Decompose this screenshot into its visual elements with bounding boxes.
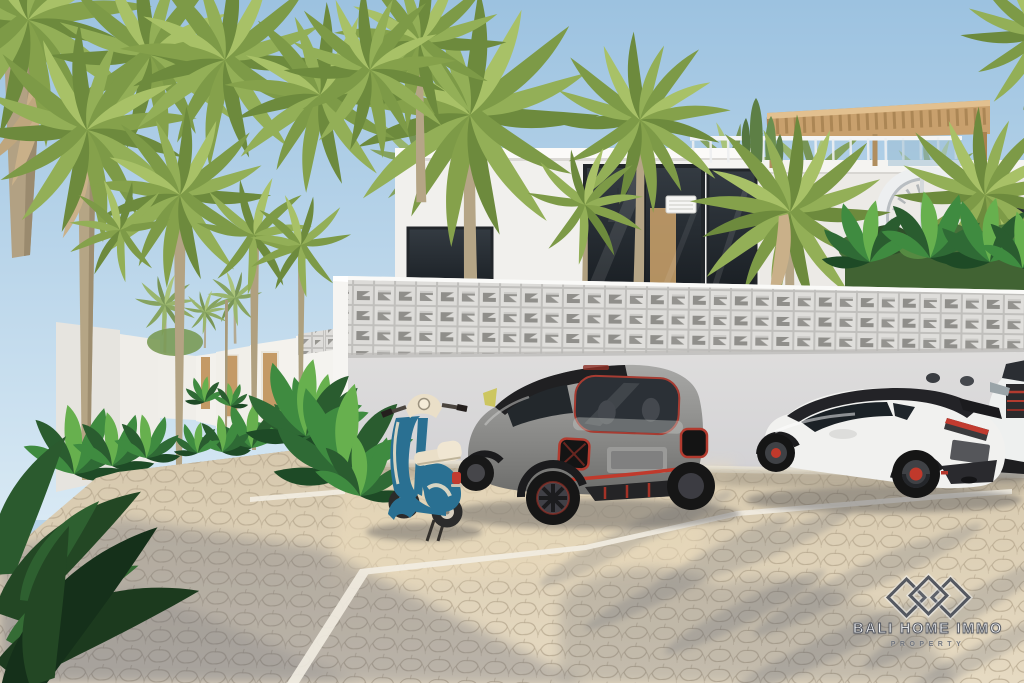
watermark-logo: BALI HOME IMMO PROPERTY (852, 577, 1004, 648)
watermark-tagline-text: PROPERTY (852, 641, 1004, 648)
property-render: BALI HOME IMMO PROPERTY (0, 0, 1024, 683)
watermark-brand-text: BALI HOME IMMO (852, 621, 1004, 637)
triple-diamond-logo-icon (852, 577, 1004, 617)
ac-unit (666, 196, 696, 213)
